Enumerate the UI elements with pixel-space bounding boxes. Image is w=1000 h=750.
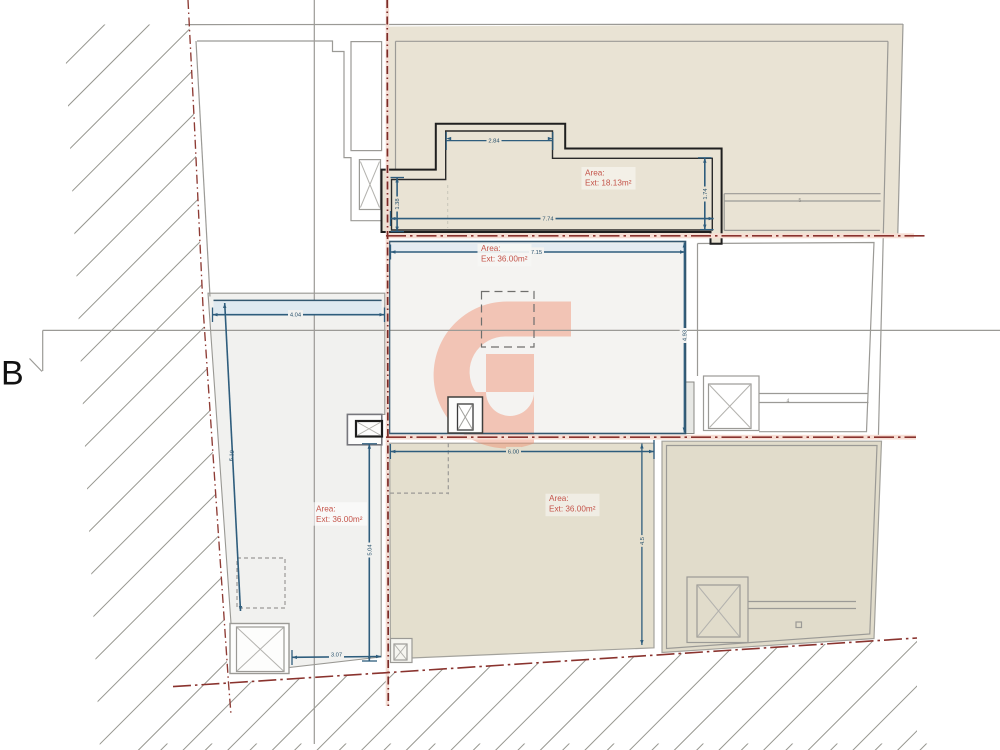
svg-text:5: 5 xyxy=(799,198,802,204)
svg-text:1.38: 1.38 xyxy=(395,198,401,209)
svg-text:Area:: Area: xyxy=(481,244,501,253)
svg-text:Ext: 36.00m²: Ext: 36.00m² xyxy=(481,255,528,264)
svg-text:3.07: 3.07 xyxy=(331,653,342,659)
svg-text:B: B xyxy=(1,355,24,393)
svg-text:4.5: 4.5 xyxy=(640,537,646,545)
svg-text:6.19: 6.19 xyxy=(229,450,236,462)
svg-text:4.93: 4.93 xyxy=(682,330,688,341)
svg-text:4.04: 4.04 xyxy=(290,313,302,319)
svg-text:4: 4 xyxy=(787,399,790,405)
svg-text:1.74: 1.74 xyxy=(703,188,709,200)
svg-text:7.74: 7.74 xyxy=(542,217,554,223)
svg-text:6.00: 6.00 xyxy=(508,450,519,456)
svg-text:Area:: Area: xyxy=(549,494,569,503)
svg-text:Ext: 18.13m²: Ext: 18.13m² xyxy=(585,179,632,188)
svg-text:5.04: 5.04 xyxy=(367,544,373,556)
svg-text:Ext: 36.00m²: Ext: 36.00m² xyxy=(549,504,596,513)
svg-text:2.84: 2.84 xyxy=(488,139,500,145)
svg-text:Area:: Area: xyxy=(316,505,336,514)
svg-text:7.15: 7.15 xyxy=(531,250,542,256)
svg-text:Ext: 36.00m²: Ext: 36.00m² xyxy=(316,515,363,524)
svg-text:Area:: Area: xyxy=(585,168,605,177)
